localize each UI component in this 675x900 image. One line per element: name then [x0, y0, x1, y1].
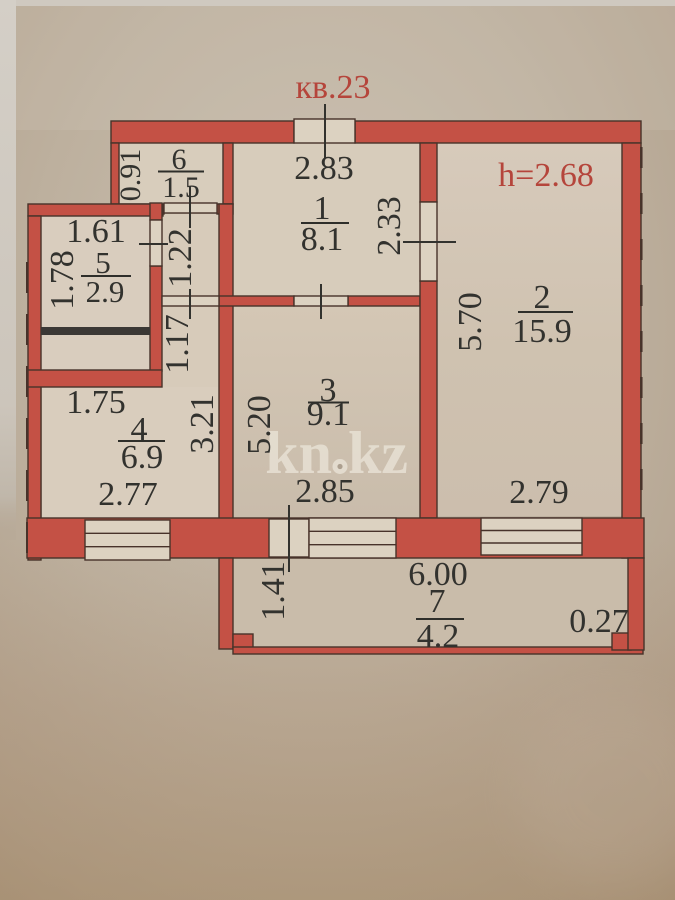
svg-text:kz: kz [348, 420, 408, 486]
svg-text:1.75: 1.75 [66, 384, 126, 421]
svg-text:5.20: 5.20 [241, 395, 278, 455]
svg-text:1.5: 1.5 [162, 171, 200, 204]
svg-text:2.85: 2.85 [295, 473, 355, 510]
svg-text:2.83: 2.83 [294, 150, 354, 187]
svg-text:8.1: 8.1 [301, 221, 344, 258]
svg-text:1.41: 1.41 [255, 561, 292, 621]
svg-text:0.27: 0.27 [569, 603, 629, 640]
svg-text:2.9: 2.9 [86, 274, 125, 309]
svg-text:2.79: 2.79 [509, 474, 569, 511]
svg-text:2: 2 [534, 279, 551, 316]
svg-text:6.9: 6.9 [121, 439, 164, 476]
svg-text:1.17: 1.17 [159, 314, 196, 374]
svg-text:2.77: 2.77 [98, 476, 158, 513]
svg-text:h=2.68: h=2.68 [498, 157, 594, 194]
svg-text:0.91: 0.91 [114, 149, 147, 202]
svg-text:7: 7 [429, 583, 446, 620]
svg-text:3.21: 3.21 [184, 394, 221, 454]
svg-text:4.2: 4.2 [417, 618, 460, 655]
svg-text:1.78: 1.78 [44, 250, 81, 310]
svg-text:1.22: 1.22 [162, 228, 199, 288]
svg-text:кв.23: кв.23 [295, 69, 370, 106]
svg-text:15.9: 15.9 [512, 313, 572, 350]
svg-text:9.1: 9.1 [307, 396, 350, 433]
svg-text:5.70: 5.70 [452, 292, 489, 352]
svg-text:2.33: 2.33 [371, 196, 408, 256]
